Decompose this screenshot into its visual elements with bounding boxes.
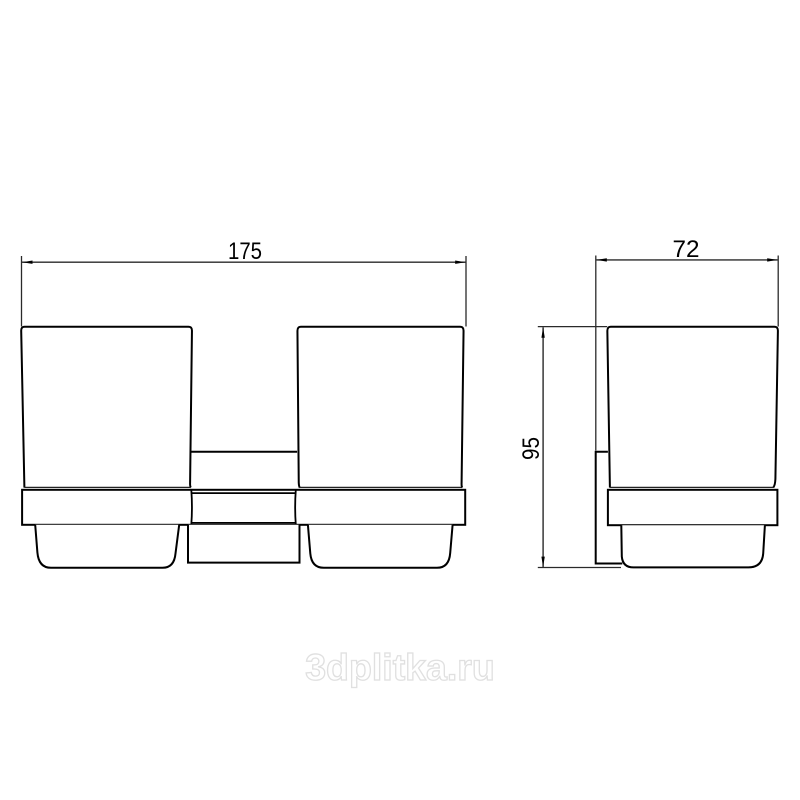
svg-text:3dplitka.ru: 3dplitka.ru: [305, 646, 495, 688]
svg-text:72: 72: [673, 236, 700, 263]
svg-text:175: 175: [228, 238, 262, 265]
svg-text:95: 95: [518, 437, 545, 460]
